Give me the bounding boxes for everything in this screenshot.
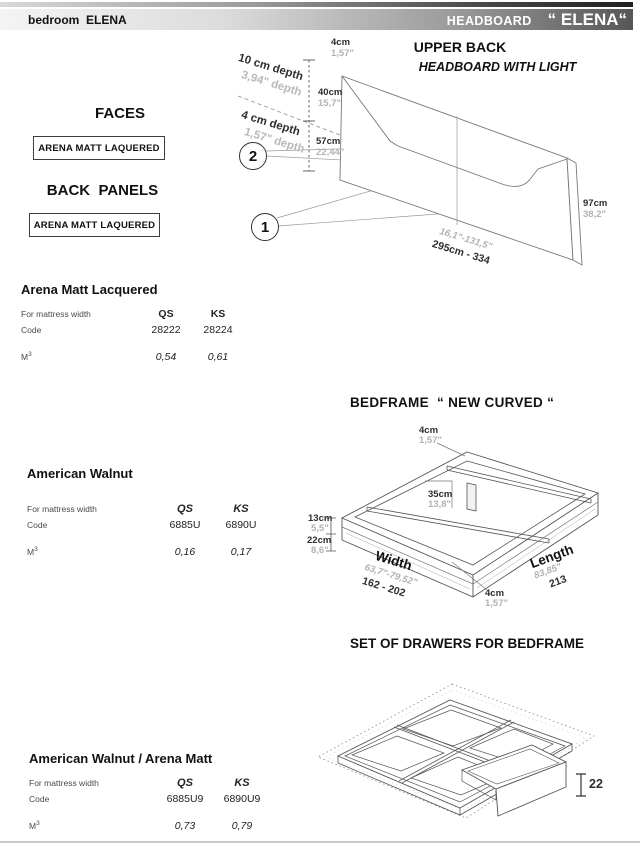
header-product-label: HEADBOARD [447, 14, 532, 28]
bedframe-title: BEDFRAME “ NEW CURVED “ [350, 395, 554, 410]
dim-h57-in: 22,44" [316, 148, 344, 158]
code-ks: 6890U9 [216, 793, 268, 805]
page-title-left: bedroom ELENA [28, 13, 127, 27]
col-qs: QS [159, 503, 211, 515]
table-row: Code 28222 28224 [21, 324, 244, 336]
headboard-spec-title: Arena Matt Lacquered [21, 282, 244, 297]
m3-qs: 0,73 [159, 820, 211, 832]
table-row: Code 6885U9 6890U9 [29, 793, 268, 805]
m3-ks: 0,79 [216, 820, 268, 832]
catalog-page: bedroom ELENA HEADBOARD “ ELENA“ UPPER B… [0, 0, 640, 844]
col-qs: QS [140, 308, 192, 320]
row-header: For mattress width [29, 778, 154, 788]
code-qs: 6885U9 [159, 793, 211, 805]
dim-h57-cm: 57cm [316, 137, 340, 147]
table-row: M3 0,16 0,17 [27, 546, 267, 558]
faces-finish-box: ARENA MATT LAQUERED [33, 136, 165, 160]
dim-frame-in: 1,57" [419, 436, 442, 446]
dim-drawer-height: 22 [589, 778, 603, 791]
header-band: bedroom ELENA HEADBOARD “ ELENA“ [0, 9, 633, 30]
callout-1: 1 [251, 213, 279, 241]
page-bottom-rule [0, 841, 640, 843]
col-qs: QS [159, 777, 211, 789]
dim-h40-in: 15,7" [318, 99, 341, 109]
code-ks: 28224 [192, 324, 244, 336]
dim-h40-cm: 40cm [318, 88, 342, 98]
m3-ks: 0,61 [192, 351, 244, 363]
table-row: For mattress width QS KS [21, 308, 244, 320]
code-label: Code [21, 325, 140, 335]
page-title-right: HEADBOARD “ ELENA“ [447, 10, 627, 30]
drawers-title: SET OF DRAWERS FOR BEDFRAME [350, 636, 584, 651]
bedframe-spec-table: American Walnut For mattress width QS KS… [27, 466, 267, 558]
code-qs: 6885U [159, 519, 211, 531]
col-ks: KS [192, 308, 244, 320]
drawers-spec-title: American Walnut / Arena Matt [29, 751, 268, 766]
m3-label: M3 [21, 351, 140, 362]
m3-ks: 0,17 [215, 546, 267, 558]
m3-qs: 0,16 [159, 546, 211, 558]
m3-qs: 0,54 [140, 351, 192, 363]
m3-label: M3 [27, 546, 155, 557]
code-ks: 6890U [215, 519, 267, 531]
dim-h97-in: 38,2" [583, 210, 606, 220]
dim-frame2-in: 1,57" [485, 599, 508, 609]
code-label: Code [27, 520, 155, 530]
header-product-name: “ ELENA“ [548, 10, 627, 30]
dim-h97-cm: 97cm [583, 199, 607, 209]
row-header: For mattress width [21, 309, 140, 319]
dim-leg-in: 13,8" [428, 500, 451, 510]
m3-label: M3 [29, 820, 154, 831]
col-ks: KS [216, 777, 268, 789]
table-row: For mattress width QS KS [29, 777, 268, 789]
drawers-diagram [305, 655, 640, 844]
row-header: For mattress width [27, 504, 155, 514]
back-panels-heading: BACK PANELS [30, 182, 175, 199]
faces-heading: FACES [60, 105, 180, 122]
header-accent-strip [0, 2, 633, 7]
table-row: M3 0,73 0,79 [29, 820, 268, 832]
table-row: Code 6885U 6890U [27, 519, 267, 531]
drawers-spec-table: American Walnut / Arena Matt For mattres… [29, 751, 268, 832]
code-label: Code [29, 794, 154, 804]
table-row: For mattress width QS KS [27, 503, 267, 515]
code-qs: 28222 [140, 324, 192, 336]
bedframe-diagram [300, 415, 640, 615]
table-row: M3 0,54 0,61 [21, 351, 244, 363]
dim-h22-in: 8,6" [311, 546, 329, 556]
col-ks: KS [215, 503, 267, 515]
headboard-spec-table: Arena Matt Lacquered For mattress width … [21, 282, 244, 363]
dim-top-cm: 4cm [331, 38, 350, 48]
back-panels-finish-box: ARENA MATT LAQUERED [29, 213, 160, 237]
dim-top-in: 1,57" [331, 49, 354, 59]
callout-2: 2 [239, 142, 267, 170]
bedframe-spec-title: American Walnut [27, 466, 267, 481]
dim-h13-in: 5,5" [311, 524, 329, 534]
